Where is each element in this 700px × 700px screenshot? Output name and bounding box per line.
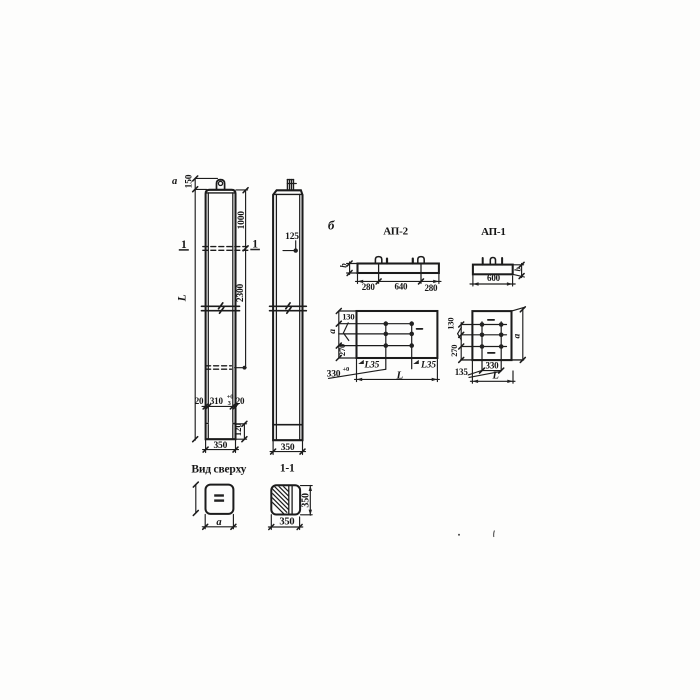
svg-text:Вид сверху: Вид сверху xyxy=(191,464,246,476)
svg-text:350: 350 xyxy=(213,441,227,451)
svg-text:135: 135 xyxy=(455,367,469,377)
svg-text:280: 280 xyxy=(362,282,376,292)
svg-text:b: b xyxy=(338,263,348,268)
svg-text:L35: L35 xyxy=(363,361,379,371)
svg-text:130: 130 xyxy=(342,312,354,322)
svg-text:АП-1: АП-1 xyxy=(481,226,506,238)
svg-text:125: 125 xyxy=(285,232,299,242)
svg-text:L: L xyxy=(396,369,404,381)
svg-text:а: а xyxy=(216,517,221,528)
svg-text:330: 330 xyxy=(327,369,341,379)
svg-text:20: 20 xyxy=(195,396,204,406)
svg-text:1000: 1000 xyxy=(237,211,247,230)
svg-text:б: б xyxy=(328,218,335,233)
svg-text:600: 600 xyxy=(487,273,501,283)
svg-text:120: 120 xyxy=(233,423,243,437)
svg-text:640: 640 xyxy=(394,282,408,292)
svg-text:270: 270 xyxy=(449,345,459,357)
svg-text:310: 310 xyxy=(210,396,224,406)
svg-text:330: 330 xyxy=(486,360,500,370)
svg-text:а: а xyxy=(172,176,177,187)
svg-text:280: 280 xyxy=(424,283,438,293)
svg-text:130: 130 xyxy=(446,318,456,330)
svg-text:L: L xyxy=(491,371,498,382)
svg-text:270: 270 xyxy=(337,344,347,356)
svg-text:1-1: 1-1 xyxy=(280,463,295,475)
svg-text:350: 350 xyxy=(281,443,295,453)
svg-text:а: а xyxy=(513,333,523,338)
svg-text:350: 350 xyxy=(279,517,294,528)
svg-text:а: а xyxy=(328,329,338,334)
svg-text:АП-2: АП-2 xyxy=(383,225,408,237)
svg-text:150: 150 xyxy=(184,174,194,188)
svg-text:20: 20 xyxy=(236,396,245,406)
svg-text:L: L xyxy=(176,294,188,302)
svg-text:L35: L35 xyxy=(420,360,436,370)
svg-text:350: 350 xyxy=(300,493,311,508)
svg-text:2300: 2300 xyxy=(236,283,246,302)
svg-text:+0: +0 xyxy=(343,366,350,373)
svg-text:b: b xyxy=(512,267,522,271)
